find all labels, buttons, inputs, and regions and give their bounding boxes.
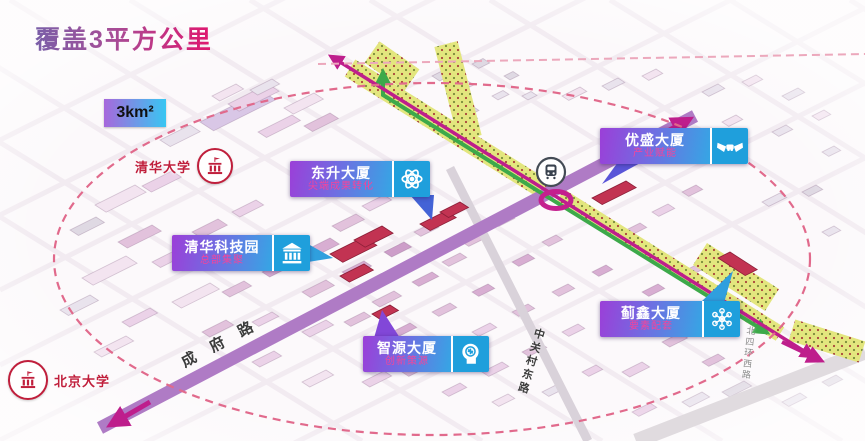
callout-subtitle: 要素配套 (629, 321, 673, 333)
callout-subtitle: 创新策源 (385, 356, 429, 368)
tsinghua-university-label: 清华大学 (135, 148, 233, 184)
callout-title: 东升大厦 (311, 166, 371, 181)
university-name: 北京大学 (54, 371, 110, 390)
callout-tsinghua_park: 清华科技园总部集聚 (172, 235, 310, 271)
callout-title: 蓟鑫大厦 (621, 306, 681, 321)
callout-text: 智源大厦创新策源 (363, 336, 453, 372)
brain-icon (453, 336, 489, 372)
subway-station-icon (537, 158, 565, 186)
callout-subtitle: 产业赋能 (633, 148, 677, 160)
area-badge: 3km² (104, 99, 166, 127)
university-name: 清华大学 (135, 157, 191, 176)
callout-zhiyuan: 智源大厦创新策源 (363, 336, 489, 372)
callout-title: 优盛大厦 (625, 133, 685, 148)
callout-title: 智源大厦 (377, 341, 437, 356)
bank-icon (274, 235, 310, 271)
handshake-icon (712, 128, 748, 164)
callout-text: 蓟鑫大厦要素配套 (600, 301, 704, 337)
callout-subtitle: 尖端成果转化 (308, 181, 374, 193)
callout-text: 清华科技园总部集聚 (172, 235, 274, 271)
school-icon (8, 360, 48, 400)
peking-university-label: 北京大学 (8, 360, 110, 400)
coverage-map: 覆盖3平方公里 3km² 清华大学 北京大学 成府路 中关村东路 北四环西路 东… (0, 0, 865, 441)
network-icon (704, 301, 740, 337)
map-illustration (0, 0, 865, 441)
callout-subtitle: 总部集聚 (200, 255, 244, 267)
atom-icon (394, 161, 430, 197)
callout-jixin: 蓟鑫大厦要素配套 (600, 301, 740, 337)
callout-title: 清华科技园 (185, 240, 260, 255)
school-icon (197, 148, 233, 184)
callout-dongsheng: 东升大厦尖端成果转化 (290, 161, 430, 197)
page-title: 覆盖3平方公里 (35, 20, 213, 56)
callout-yousheng: 优盛大厦产业赋能 (600, 128, 748, 164)
callout-text: 优盛大厦产业赋能 (600, 128, 712, 164)
callout-text: 东升大厦尖端成果转化 (290, 161, 394, 197)
